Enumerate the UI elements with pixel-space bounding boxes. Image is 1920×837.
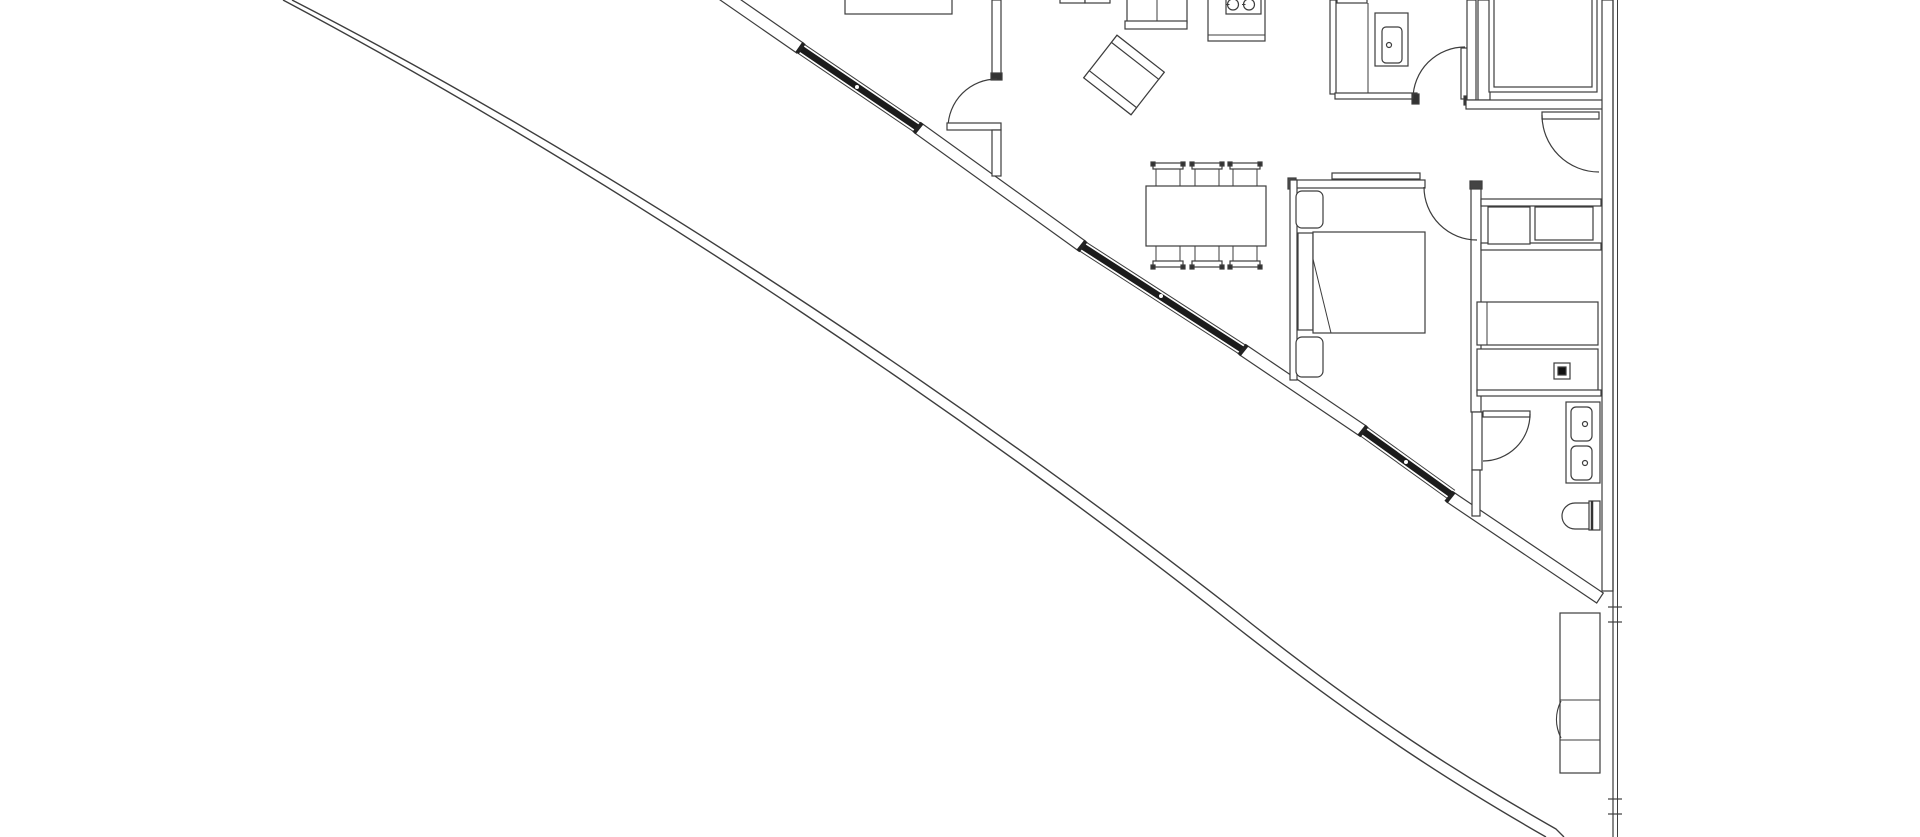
window-glass-frame-3a [1360,436,1449,500]
window-glass-1 [800,48,918,128]
shower-stall [1477,349,1598,392]
console-right [1085,0,1110,3]
shower-drain [1558,367,1566,375]
vanity-basin-2 [1571,446,1592,480]
terrace-cabinet [1560,613,1600,773]
dining-chair-top-1-post-a [1151,162,1155,166]
window-glass-frame-2b [1085,241,1246,345]
laundry-counter-top [1337,0,1367,3]
entry-wall [992,0,1001,79]
window-glass-frame-1b [803,43,921,123]
vanity-faucet-2 [1583,461,1588,466]
toilet-tank [1589,501,1600,530]
dining-chair-bottom-3-back [1230,261,1260,267]
dining-chair-top-2-post-a [1190,162,1194,166]
vanity-basin-1 [1571,407,1592,441]
bathroom-left-wall-stub [1472,470,1480,516]
sofa-base [1125,21,1187,29]
closet-shelf-unit [1535,207,1593,240]
dining-chair-bottom-1-post-b [1181,265,1185,269]
console-left [1060,0,1085,3]
vanity-faucet-1 [1583,422,1588,427]
bathroom-door-arc [1483,414,1530,461]
window-glass-frame-1a [797,53,915,133]
dining-chair-top-3-post-b [1258,162,1262,166]
storage-door-leaf [1542,112,1599,119]
bedroom-door-arc [1424,187,1477,240]
glass-mullion-tick-1 [855,85,859,89]
storage-room-inner-shelf [1494,0,1592,87]
dining-chair-bottom-1-post-a [1151,265,1155,269]
storage-door-arc [1542,115,1599,172]
storage-room-jamb-wall [1467,0,1476,100]
nightstand-bottom [1296,337,1323,377]
nightstand-top [1296,191,1323,228]
floor-plan-page [0,0,1920,837]
bedroom-right-wall-cap [1470,181,1482,189]
bathroom-door-leaf [1483,411,1530,417]
dining-table [1146,186,1266,246]
storage-room-left-wall [1478,0,1490,100]
right-party-wall [1602,0,1613,591]
laundry-wall-bottom [1335,93,1417,99]
utility-sink-faucet [1387,43,1392,48]
dining-chair-top-1-back [1153,163,1183,169]
glass-mullion-tick-3 [1404,460,1408,464]
dining-chair-bottom-3-post-a [1228,265,1232,269]
dining-chair-bottom-3-post-b [1258,265,1262,269]
dining-chair-bottom-2-back [1192,261,1222,267]
entry-door-arc [948,79,997,128]
balcony-parapet-inner-line [292,0,1564,837]
closet-niche-top-wall [1481,199,1601,206]
dining-chair-bottom-1-back [1153,261,1183,267]
bathroom-slanted-wall [1447,492,1604,603]
dining-chair-top-1-post-b [1181,162,1185,166]
laundry-wall-left [1330,0,1336,94]
bed-headboard [1298,233,1313,330]
toilet-bowl [1562,503,1589,529]
coffee-table [845,0,952,14]
dining-chair-top-3-post-a [1228,162,1232,166]
bedroom-slider-leaf [1332,173,1420,179]
dining-chair-bottom-2-post-a [1190,265,1194,269]
storage-room-bottom-wall [1466,100,1606,109]
shower-bottom-wall [1477,390,1601,396]
bedroom-top-wall [1290,180,1425,188]
window-glass-frame-3b [1366,426,1455,490]
entry-jamb-wall [992,130,1001,176]
dining-chair-top-3-back [1230,163,1260,169]
floor-plan-svg [0,0,1920,837]
dining-chair-top-2-post-b [1220,162,1224,166]
bed-mattress [1313,232,1425,333]
hall-door-arc [1413,47,1465,99]
bathroom-left-wall [1472,412,1482,470]
dining-chair-top-2-back [1192,163,1222,169]
dining-chair-bottom-2-post-b [1220,265,1224,269]
linen-shelf [1477,302,1598,345]
entry-door-leaf [947,123,1001,130]
glass-mullion-tick-2 [1159,294,1163,298]
window-wall-segment-1 [719,0,804,53]
washer-unit [1488,207,1530,244]
